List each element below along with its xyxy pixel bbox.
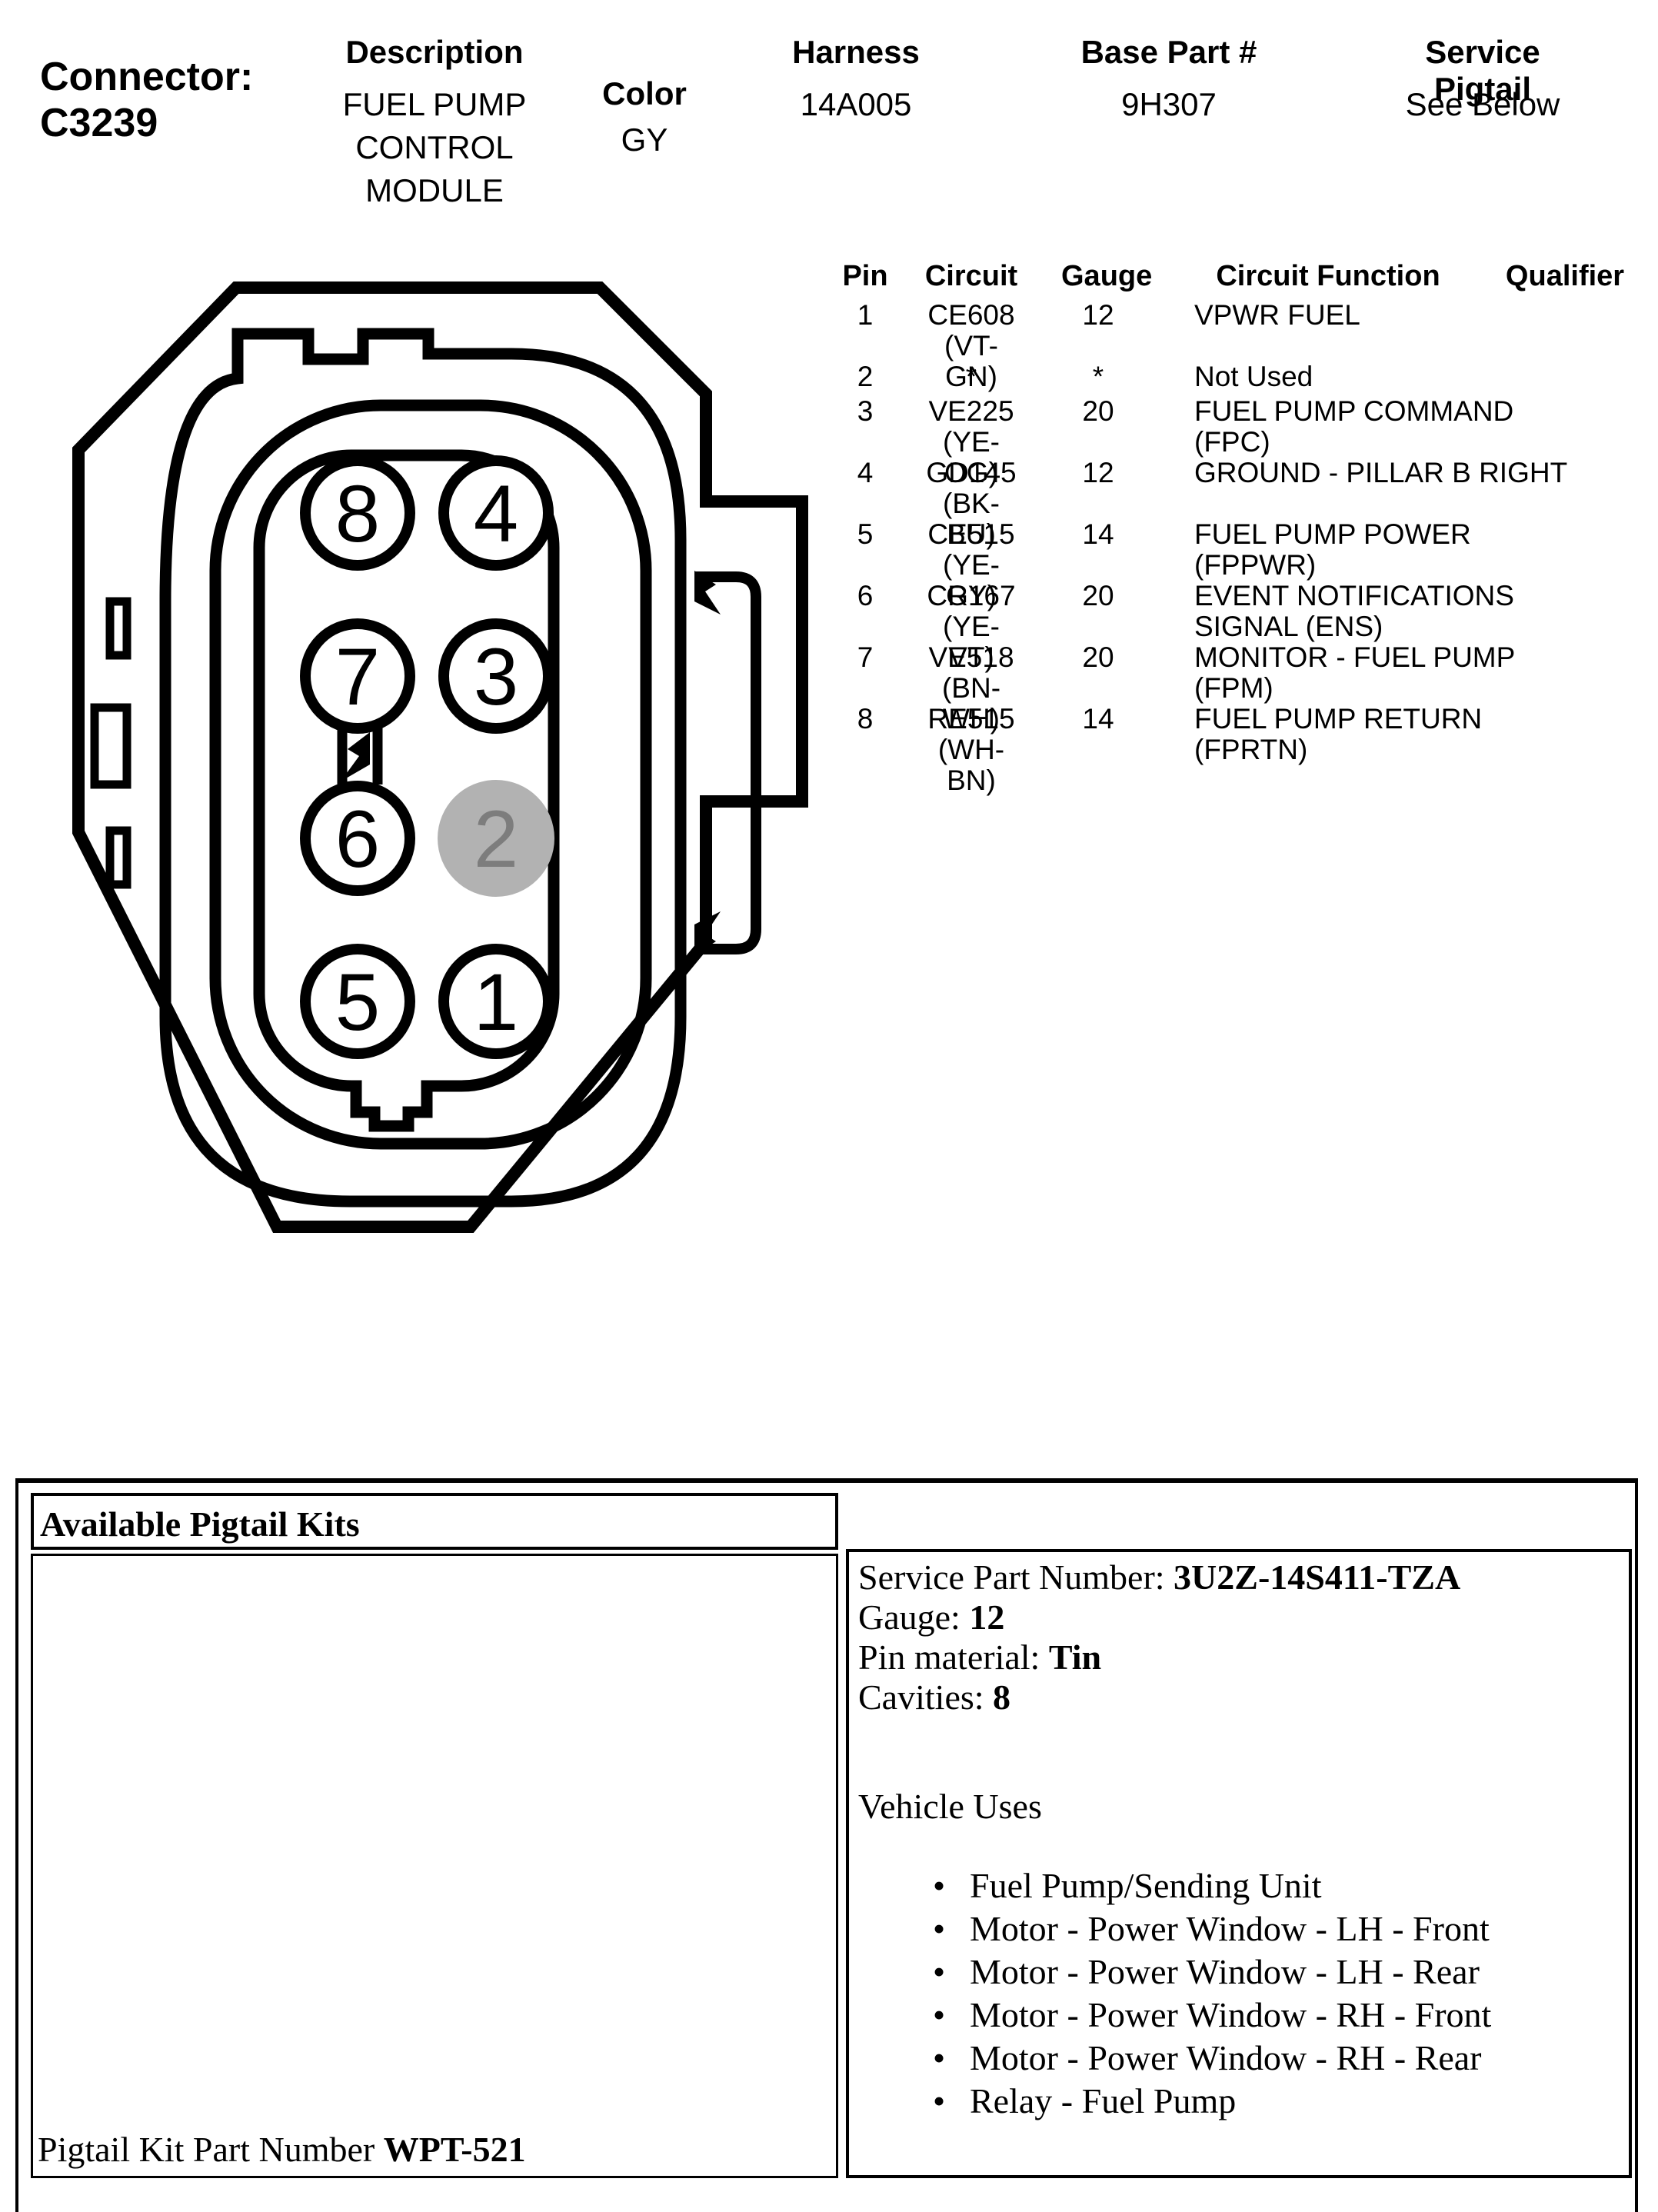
pin-material-line: Pin material: Tin <box>858 1637 1101 1677</box>
color-value: GY <box>598 122 691 158</box>
vehicle-use-item: •Motor - Power Window - RH - Front <box>970 1994 1491 2035</box>
connector-document-page: Connector: C3239 Description FUEL PUMP C… <box>0 0 1658 2212</box>
bullet-icon: • <box>933 2037 945 2078</box>
description-value-line: CONTROL <box>323 129 546 166</box>
function-cell: EVENT NOTIFICATIONSSIGNAL (ENS) <box>1194 581 1648 642</box>
bullet-icon: • <box>933 1994 945 2035</box>
color-label: Color <box>598 75 691 112</box>
vehicle-use-item: •Motor - Power Window - RH - Rear <box>970 2037 1481 2078</box>
service-pigtail-value: See Below <box>1375 86 1590 123</box>
vehicle-use-item: •Motor - Power Window - LH - Rear <box>970 1951 1480 1992</box>
function-cell: GROUND - PILLAR B RIGHT <box>1194 458 1648 488</box>
left-key-slot-bottom <box>110 831 127 884</box>
pin-number-7: 7 <box>335 632 380 722</box>
pin-table-header-circuit: Circuit <box>898 260 1044 293</box>
function-cell: VPWR FUEL <box>1194 300 1648 331</box>
pigtail-kit-cell: Pigtail Kit Part Number WPT-521 <box>31 1554 838 2178</box>
gauge-cell: 14 <box>1067 519 1129 550</box>
pin-cell: 6 <box>831 581 900 611</box>
base-part-label: Base Part # <box>1069 34 1269 71</box>
service-part-cell: Service Part Number: 3U2Z-14S411-TZA Gau… <box>846 1549 1632 2178</box>
service-part-number-line: Service Part Number: 3U2Z-14S411-TZA <box>858 1557 1460 1597</box>
gauge-cell: 20 <box>1067 642 1129 673</box>
connector-id: Connector: C3239 <box>40 54 253 146</box>
circuit-cell: RE515 (WH-BN) <box>898 704 1044 796</box>
connector-label: Connector: <box>40 54 253 100</box>
function-cell: MONITOR - FUEL PUMP(FPM) <box>1194 642 1648 704</box>
vehicle-use-item: •Relay - Fuel Pump <box>970 2080 1236 2121</box>
kit-label: Pigtail Kit Part Number <box>38 2130 384 2169</box>
pin-number-4: 4 <box>474 469 518 559</box>
connector-face-diagram: 8 4 7 3 6 2 5 1 <box>65 271 827 1248</box>
pin-number-5: 5 <box>335 958 380 1048</box>
pin-cell: 5 <box>831 519 900 550</box>
function-cell: Not Used <box>1194 361 1648 392</box>
gauge-cell: 12 <box>1067 300 1129 331</box>
gauge-line: Gauge: 12 <box>858 1597 1004 1637</box>
function-cell: FUEL PUMP COMMAND(FPC) <box>1194 396 1648 458</box>
left-key-slot-top <box>110 601 127 655</box>
gauge-cell: 12 <box>1067 458 1129 488</box>
pin-number-8: 8 <box>335 469 380 559</box>
bullet-icon: • <box>933 1951 945 1992</box>
pin-number-2: 2 <box>474 795 518 884</box>
kit-value: WPT-521 <box>384 2130 526 2169</box>
harness-label: Harness <box>787 34 925 71</box>
vehicle-uses-title: Vehicle Uses <box>858 1786 1042 1827</box>
pin-cell: 3 <box>831 396 900 427</box>
left-key-slot-middle <box>95 708 127 785</box>
description-value-line: FUEL PUMP <box>323 86 546 123</box>
pin-table-header-gauge: Gauge <box>1061 260 1142 293</box>
pin-cell: 4 <box>831 458 900 488</box>
pin-number-1: 1 <box>474 958 518 1048</box>
pigtail-kits-title-box: Available Pigtail Kits <box>31 1493 838 1550</box>
pin-number-6: 6 <box>335 795 380 884</box>
pin-number-3: 3 <box>474 632 518 722</box>
function-cell: FUEL PUMP POWER(FPPWR) <box>1194 519 1648 581</box>
bullet-icon: • <box>933 2080 945 2121</box>
base-part-value: 9H307 <box>1069 86 1269 123</box>
gauge-cell: 20 <box>1067 396 1129 427</box>
pin-table-header-function: Circuit Function <box>1200 260 1457 293</box>
cavities-line: Cavities: 8 <box>858 1677 1010 1717</box>
gauge-cell: 14 <box>1067 704 1129 735</box>
bullet-icon: • <box>933 1865 945 1906</box>
pigtail-kit-part-number-line: Pigtail Kit Part Number WPT-521 <box>38 2129 526 2170</box>
pin-cell: 8 <box>831 704 900 735</box>
pin-cell: 1 <box>831 300 900 331</box>
gauge-cell: 20 <box>1067 581 1129 611</box>
pin-cell: 7 <box>831 642 900 673</box>
description-value-line: MODULE <box>323 172 546 209</box>
vehicle-use-item: •Fuel Pump/Sending Unit <box>970 1865 1321 1906</box>
pin-cell: 2 <box>831 361 900 392</box>
bullet-icon: • <box>933 1908 945 1949</box>
gauge-cell: * <box>1067 361 1129 392</box>
description-label: Description <box>323 34 546 71</box>
harness-value: 14A005 <box>787 86 925 123</box>
pin-table-header-qualifier: Qualifier <box>1480 260 1650 293</box>
function-cell: FUEL PUMP RETURN(FPRTN) <box>1194 704 1648 765</box>
vehicle-use-item: •Motor - Power Window - LH - Front <box>970 1908 1490 1949</box>
circuit-cell: * <box>898 361 1044 392</box>
pigtail-kits-title: Available Pigtail Kits <box>40 1504 360 1544</box>
pin-table-header-pin: Pin <box>831 260 900 293</box>
connector-number: C3239 <box>40 100 253 146</box>
